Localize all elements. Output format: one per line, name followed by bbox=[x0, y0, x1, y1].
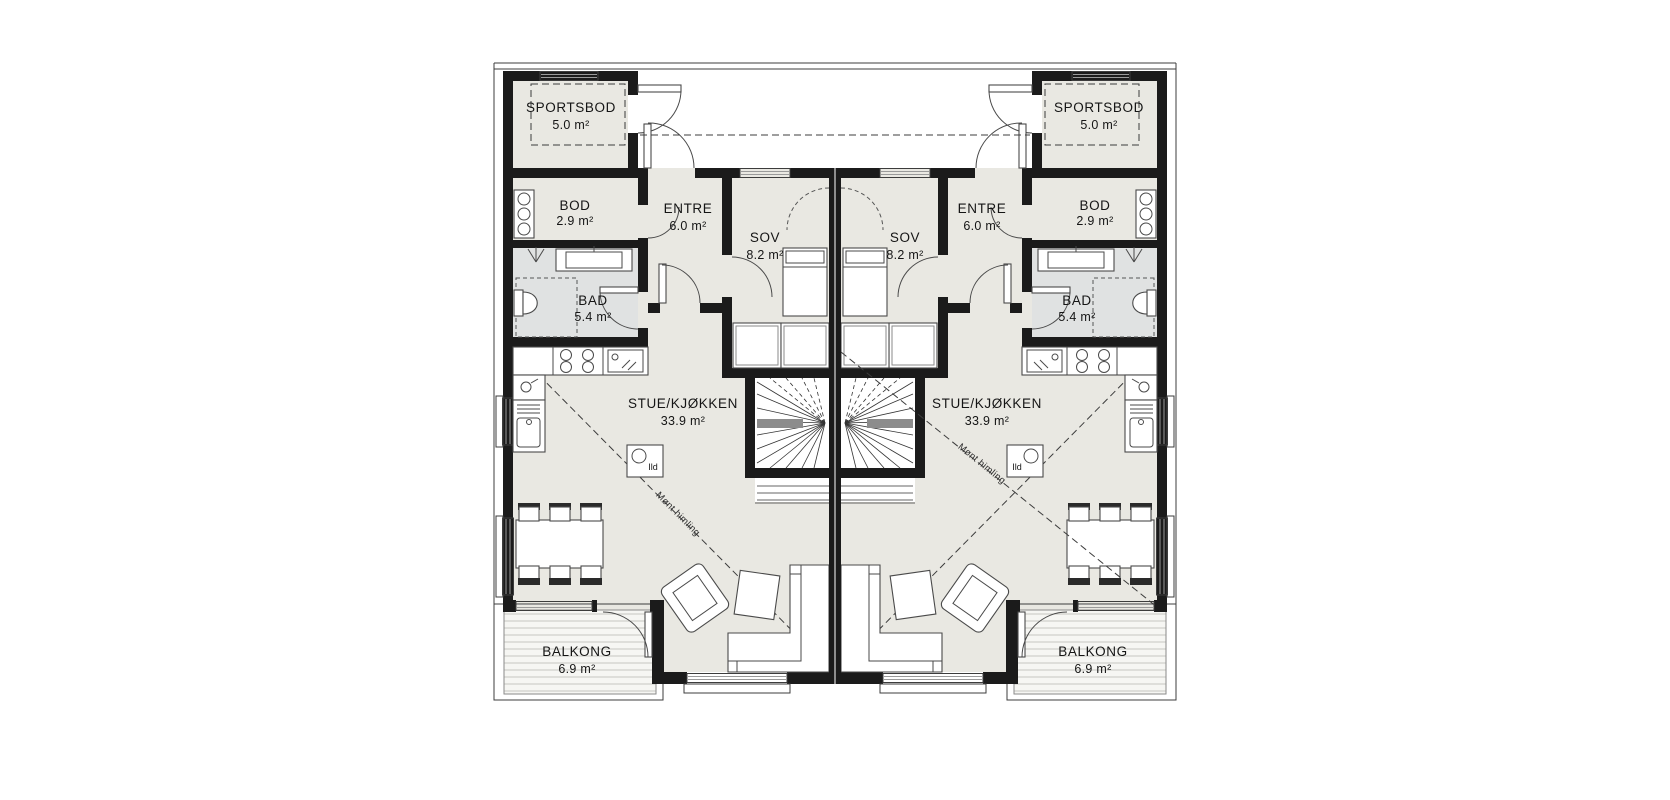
room-area-entre-left: 6.0 m² bbox=[669, 219, 706, 233]
room-area-sportsbod-left: 5.0 m² bbox=[552, 118, 589, 132]
room-area-sov-left: 8.2 m² bbox=[746, 248, 783, 262]
fireplace-label-right: Ild bbox=[1012, 462, 1022, 472]
room-label-stue-right: STUE/KJØKKEN bbox=[932, 396, 1042, 411]
room-label-balkong-left: BALKONG bbox=[542, 644, 611, 659]
room-label-bod-right: BOD bbox=[1079, 198, 1110, 213]
room-area-bad-left: 5.4 m² bbox=[574, 310, 611, 324]
room-label-entre-right: ENTRE bbox=[958, 201, 1007, 216]
room-label-sportsbod-left: SPORTSBOD bbox=[526, 100, 616, 115]
fireplace-label-left: Ild bbox=[648, 462, 658, 472]
unit-left-geometry bbox=[494, 71, 835, 700]
room-area-bad-right: 5.4 m² bbox=[1058, 310, 1095, 324]
room-area-stue-left: 33.9 m² bbox=[661, 414, 705, 428]
room-label-sov-right: SOV bbox=[890, 230, 920, 245]
unit-right-geometry bbox=[835, 71, 1176, 700]
room-area-sov-right: 8.2 m² bbox=[886, 248, 923, 262]
room-area-balkong-right: 6.9 m² bbox=[1074, 662, 1111, 676]
room-label-sov-left: SOV bbox=[750, 230, 780, 245]
room-area-bod-right: 2.9 m² bbox=[1076, 214, 1113, 228]
room-area-bod-left: 2.9 m² bbox=[556, 214, 593, 228]
room-label-bad-left: BAD bbox=[578, 293, 608, 308]
room-area-balkong-left: 6.9 m² bbox=[558, 662, 595, 676]
floor-plan: SPORTSBOD 5.0 m² BOD 2.9 m² ENTRE 6.0 m²… bbox=[0, 0, 1670, 800]
room-label-sportsbod-right: SPORTSBOD bbox=[1054, 100, 1144, 115]
room-label-bad-right: BAD bbox=[1062, 293, 1092, 308]
room-label-stue-left: STUE/KJØKKEN bbox=[628, 396, 738, 411]
room-label-entre-left: ENTRE bbox=[664, 201, 713, 216]
room-area-entre-right: 6.0 m² bbox=[963, 219, 1000, 233]
room-area-stue-right: 33.9 m² bbox=[965, 414, 1009, 428]
party-wall bbox=[829, 168, 841, 684]
room-area-sportsbod-right: 5.0 m² bbox=[1080, 118, 1117, 132]
room-label-balkong-right: BALKONG bbox=[1058, 644, 1127, 659]
room-label-bod-left: BOD bbox=[559, 198, 590, 213]
